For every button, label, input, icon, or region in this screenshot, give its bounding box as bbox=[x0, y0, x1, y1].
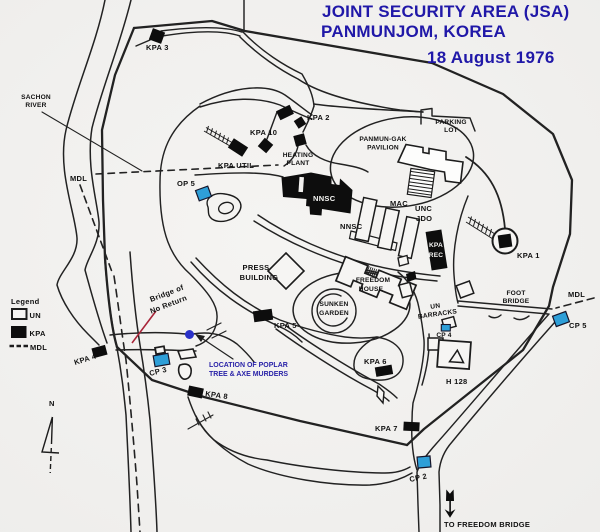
svg-text:MDL: MDL bbox=[568, 290, 585, 299]
svg-text:18 August 1976: 18 August 1976 bbox=[427, 48, 555, 67]
svg-text:FOOT: FOOT bbox=[506, 290, 525, 297]
svg-text:GARDEN: GARDEN bbox=[319, 310, 349, 317]
svg-text:KPA: KPA bbox=[429, 242, 443, 249]
svg-text:MAC: MAC bbox=[390, 199, 408, 208]
svg-text:N: N bbox=[49, 399, 55, 408]
svg-text:NNSC: NNSC bbox=[340, 222, 363, 231]
svg-text:KPA 3: KPA 3 bbox=[146, 43, 169, 52]
svg-text:SACHON: SACHON bbox=[21, 94, 51, 101]
svg-text:UN: UN bbox=[430, 303, 441, 311]
svg-text:MDL: MDL bbox=[70, 174, 87, 183]
svg-text:LOT: LOT bbox=[444, 127, 458, 134]
svg-text:KPA 7: KPA 7 bbox=[375, 424, 398, 433]
svg-text:CP 5: CP 5 bbox=[569, 321, 587, 330]
svg-text:KPA 10: KPA 10 bbox=[250, 128, 277, 137]
svg-text:HEATING: HEATING bbox=[283, 152, 314, 159]
svg-text:UNC: UNC bbox=[415, 204, 432, 213]
svg-text:BUILDING: BUILDING bbox=[240, 273, 279, 282]
svg-text:PLANT: PLANT bbox=[287, 160, 310, 167]
svg-text:UN: UN bbox=[30, 311, 41, 320]
svg-text:KPA 2: KPA 2 bbox=[307, 113, 330, 122]
svg-text:HOUSE: HOUSE bbox=[359, 286, 384, 293]
svg-text:KPA: KPA bbox=[30, 329, 46, 338]
svg-text:LOCATION OF POPLAR: LOCATION OF POPLAR bbox=[209, 362, 288, 369]
svg-text:H 128: H 128 bbox=[446, 377, 468, 386]
svg-text:FREEDOM: FREEDOM bbox=[356, 277, 391, 284]
svg-text:Legend: Legend bbox=[11, 297, 40, 306]
svg-text:KPA 1: KPA 1 bbox=[517, 251, 540, 260]
svg-text:CP 4: CP 4 bbox=[436, 332, 451, 339]
svg-text:PAVILION: PAVILION bbox=[367, 145, 399, 152]
svg-text:KPA 6: KPA 6 bbox=[364, 357, 387, 366]
svg-text:TREE & AXE MURDERS: TREE & AXE MURDERS bbox=[209, 371, 288, 378]
svg-text:JOINT SECURITY AREA (JSA): JOINT SECURITY AREA (JSA) bbox=[322, 2, 569, 21]
svg-text:PANMUNJOM, KOREA: PANMUNJOM, KOREA bbox=[321, 22, 506, 41]
svg-text:PANMUN-GAK: PANMUN-GAK bbox=[359, 136, 406, 143]
svg-text:BRIDGE: BRIDGE bbox=[503, 298, 530, 305]
svg-text:PRESS: PRESS bbox=[243, 263, 270, 272]
svg-text:MDL: MDL bbox=[30, 343, 47, 352]
svg-text:JDO: JDO bbox=[416, 214, 432, 223]
svg-text:SUNKEN: SUNKEN bbox=[319, 301, 348, 308]
svg-text:TO FREEDOM BRIDGE: TO FREEDOM BRIDGE bbox=[444, 520, 530, 529]
svg-text:OP 5: OP 5 bbox=[177, 179, 195, 188]
svg-text:REC: REC bbox=[429, 252, 444, 259]
svg-text:RIVER: RIVER bbox=[25, 102, 46, 109]
svg-text:KPA 5: KPA 5 bbox=[274, 321, 297, 330]
svg-text:NNSC: NNSC bbox=[313, 194, 336, 203]
svg-text:PARKING: PARKING bbox=[435, 119, 466, 126]
svg-text:KPA UTIL: KPA UTIL bbox=[218, 161, 254, 170]
